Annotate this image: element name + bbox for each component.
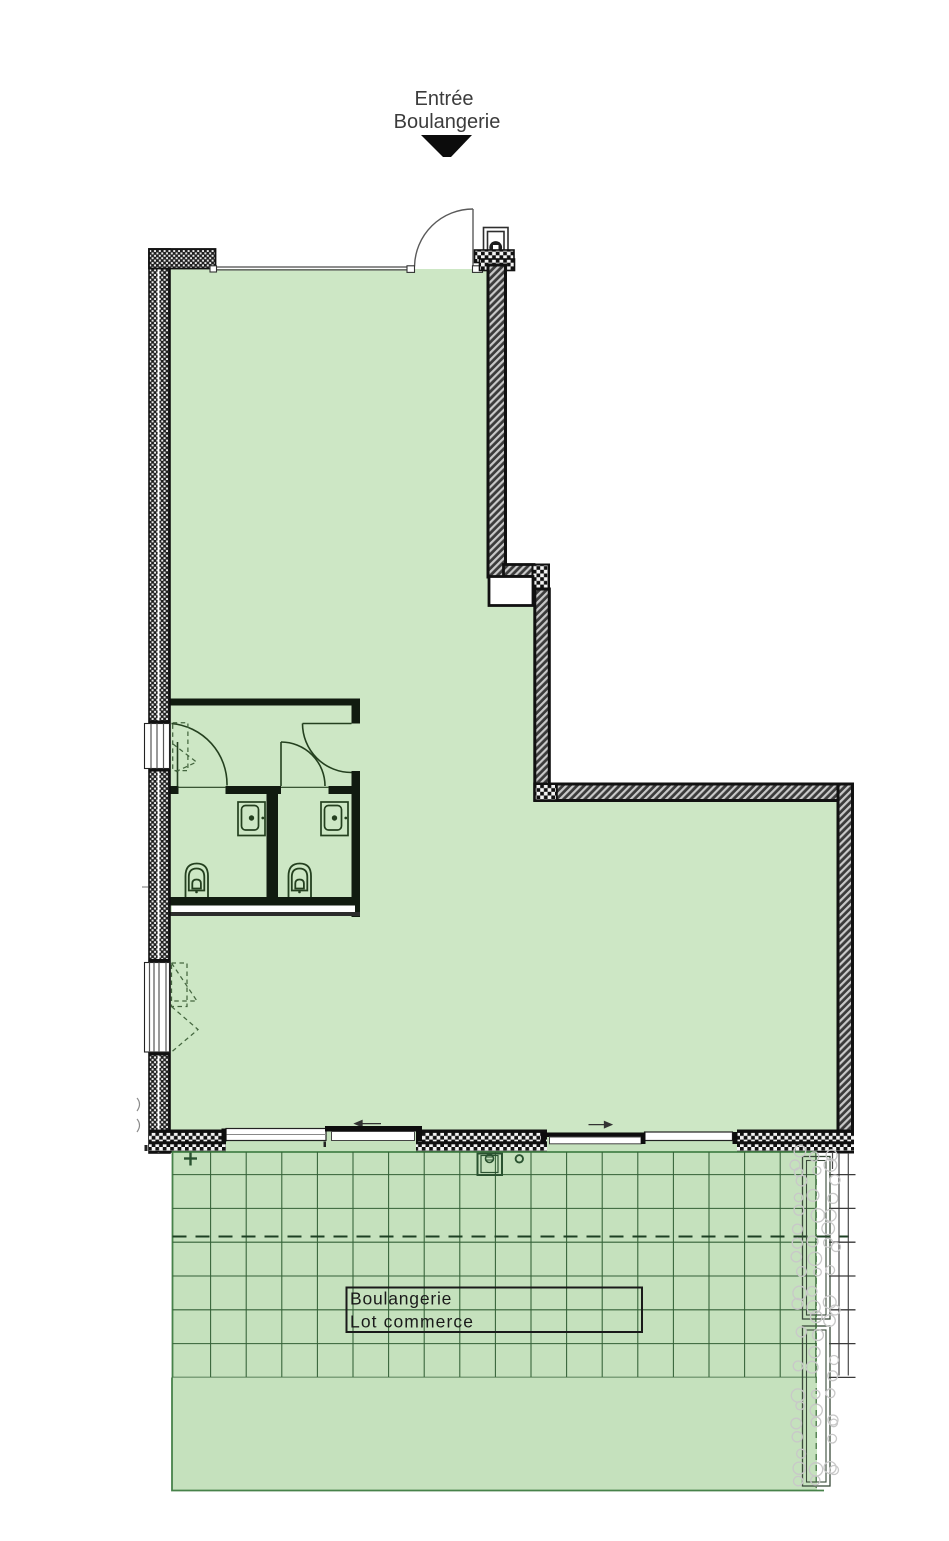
svg-text:Lot commerce: Lot commerce xyxy=(350,1312,474,1332)
svg-text:Boulangerie: Boulangerie xyxy=(394,111,501,133)
svg-text:Entrée: Entrée xyxy=(415,88,474,110)
svg-text:Boulangerie: Boulangerie xyxy=(350,1289,452,1309)
